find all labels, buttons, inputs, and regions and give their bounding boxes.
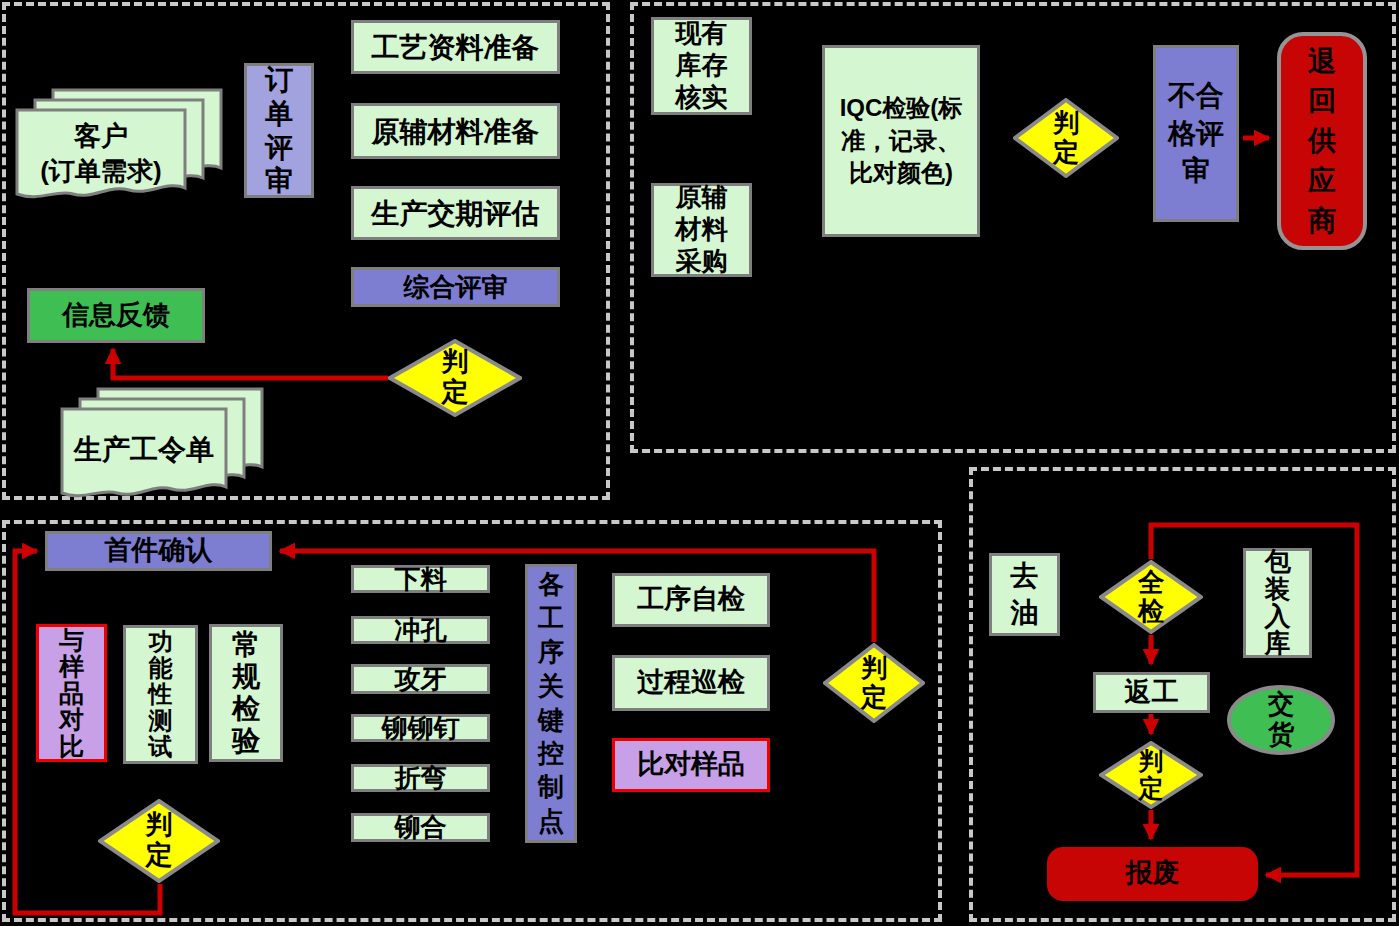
node-stock-verify: 现有库存核实 <box>651 17 752 115</box>
node-step-bending: 折弯 <box>351 764 490 792</box>
node-material-purchase: 原辅材料采购 <box>651 183 752 277</box>
decision-iqc-judgment: 判定 <box>1013 98 1119 178</box>
node-nonconforming-review: 不合格评审 <box>1153 45 1239 222</box>
node-degrease: 去油 <box>989 553 1060 636</box>
work-order-document-label: 生产工令单 <box>60 425 228 475</box>
node-step-riveting: 铆铆钉 <box>351 714 490 742</box>
node-process-self-check: 工序自检 <box>612 573 770 627</box>
node-step-tapping: 攻牙 <box>351 664 490 694</box>
node-packing-storage: 包装入库 <box>1243 548 1312 658</box>
node-compare-sample: 比对样品 <box>612 738 770 792</box>
node-step-cutting: 下料 <box>351 565 490 593</box>
node-info-feedback: 信息反馈 <box>27 288 205 343</box>
node-iqc-inspection: IQC检验(标准，记录、比对颜色) <box>822 45 980 237</box>
node-delivery-eval: 生产交期评估 <box>351 186 560 240</box>
node-functional-test: 功能性测试 <box>123 625 198 764</box>
decision-first-article-judgment: 判定 <box>98 799 220 883</box>
customer-document-label: 客户 (订单需求) <box>15 118 187 188</box>
node-order-review: 订单评审 <box>244 63 314 198</box>
node-first-article-confirm: 首件确认 <box>45 531 272 571</box>
decision-final-judgment: 判定 <box>1099 741 1203 809</box>
node-scrap: 报废 <box>1047 847 1258 901</box>
node-process-patrol-check: 过程巡检 <box>612 655 770 711</box>
node-material-prep: 原辅材料准备 <box>351 103 560 159</box>
node-step-crimping: 铆合 <box>351 813 490 842</box>
node-return-to-supplier: 退回供应商 <box>1277 32 1367 250</box>
node-delivery: 交货 <box>1227 685 1335 755</box>
node-rework: 返工 <box>1093 672 1210 713</box>
node-routine-inspection: 常规检验 <box>209 624 283 762</box>
node-process-data-prep: 工艺资料准备 <box>351 20 560 74</box>
node-compare-with-sample: 与样品对比 <box>36 624 107 762</box>
decision-full-inspection: 全检 <box>1099 560 1203 634</box>
decision-production-judgment: 判定 <box>823 643 925 723</box>
decision-order-judgment: 判定 <box>388 339 522 417</box>
customer-line2: (订单需求) <box>40 154 161 189</box>
node-key-control-points: 各工序关键控制点 <box>525 564 577 843</box>
node-step-punching: 冲孔 <box>351 616 490 644</box>
node-comprehensive-review: 综合评审 <box>351 267 560 307</box>
customer-line1: 客户 <box>74 118 128 154</box>
flowchart-canvas: 客户 (订单需求) 订单评审 工艺资料准备 原辅材料准备 生产交期评估 综合评审… <box>0 0 1399 926</box>
